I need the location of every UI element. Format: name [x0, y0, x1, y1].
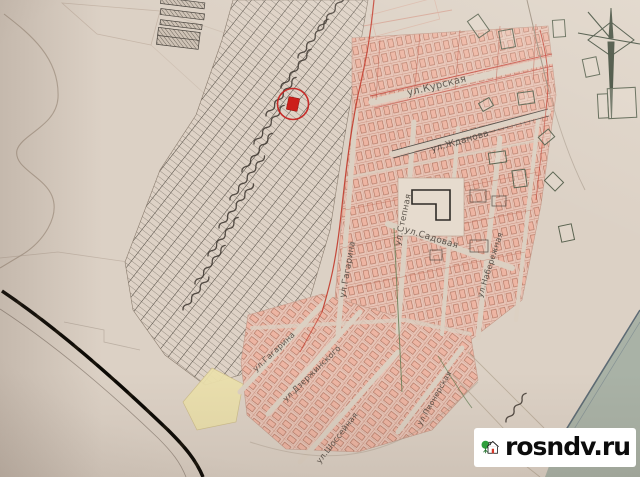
- listing-photo-map: ул.Курскаяул.Ждановаул.Гагаринаул.Степна…: [0, 0, 640, 477]
- building-outline: [607, 87, 637, 118]
- building-outline: [488, 151, 506, 164]
- building-outline: [499, 29, 516, 49]
- building-outline: [552, 20, 565, 38]
- watermark-text: rosndv.ru: [505, 434, 630, 459]
- yellow-parcel: [183, 368, 243, 430]
- hatched-buildings: [155, 0, 205, 50]
- building-outline: [544, 172, 563, 191]
- building-outline: [597, 94, 608, 118]
- city-plan-map: ул.Курскаяул.Ждановаул.Гагаринаул.Степна…: [0, 0, 640, 477]
- building-outline: [512, 169, 527, 188]
- pencil-sketch-lines: [0, 14, 140, 350]
- rosndv-logo-icon: [481, 432, 499, 463]
- building-outline: [517, 91, 535, 105]
- building-outline: [582, 57, 599, 78]
- building-outline: [558, 224, 574, 242]
- rosndv-watermark: rosndv.ru: [474, 428, 636, 467]
